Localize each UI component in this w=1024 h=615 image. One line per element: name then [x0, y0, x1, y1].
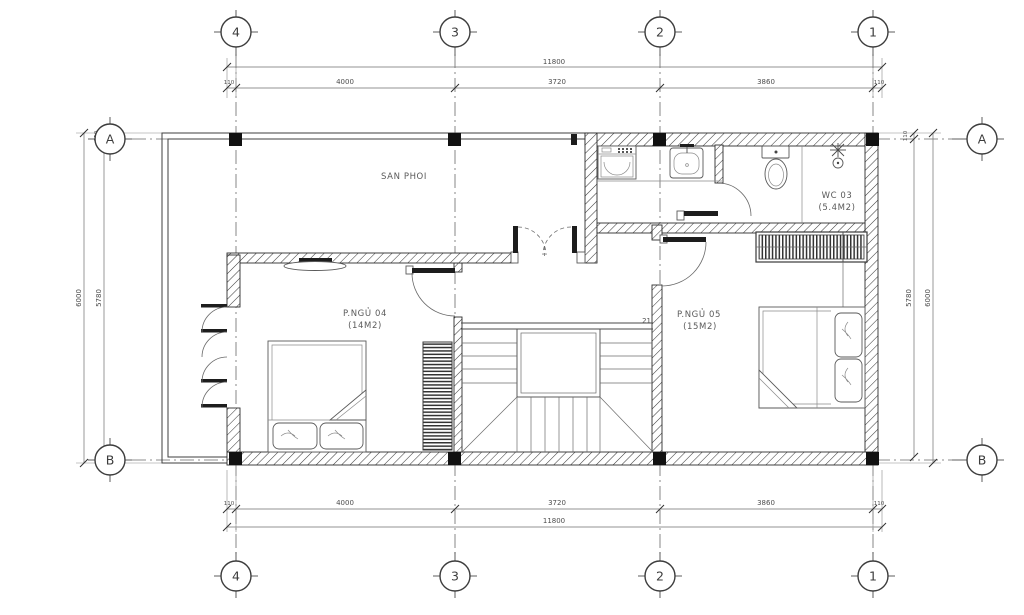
grid-bubble-label: 1 [869, 25, 877, 40]
grid-bubble-label: A [978, 132, 987, 147]
grid-bubble-top-2: 2 [638, 10, 682, 56]
bed-bedroom-04 [268, 341, 366, 452]
grid-bubble-top-1: 1 [851, 10, 895, 56]
dimension-chain-left: 6000 110 5780 [75, 129, 162, 467]
floor-plan-page: 11800 110 4000 3720 3860 110 110 4000 37… [0, 0, 1024, 615]
door-bedroom-05 [660, 235, 706, 286]
dim-top-seg-110-left: 110 [224, 80, 235, 86]
room-area-bed5: (15M2) [683, 322, 717, 332]
grid-bubble-left-B: B [88, 438, 132, 482]
stair-treads-left [462, 343, 517, 383]
grid-bubble-top-3: 3 [433, 10, 477, 56]
dim-right-inner: 5780 [905, 289, 913, 307]
wall-bed4-west-upper [227, 255, 240, 307]
grid-lines [132, 54, 952, 556]
door-jamb-double-door-left [511, 252, 518, 263]
dim-top-seg-3720: 3720 [548, 78, 566, 86]
dimension-chain-bottom: 110 4000 3720 3860 110 11800 [223, 470, 886, 532]
double-door-terrace [513, 226, 577, 256]
dimension-chain-top: 11800 110 4000 3720 3860 110 [223, 58, 886, 98]
dim-bottom-seg-3860: 3860 [757, 499, 775, 507]
wardrobe-bedroom-04 [423, 342, 452, 450]
grid-bubble-label: 3 [451, 25, 459, 40]
grid-bubble-label: 2 [656, 569, 664, 584]
stair-treads-bottom [517, 397, 600, 452]
bed-bedroom-05 [759, 307, 865, 408]
grid-bubble-label: B [106, 453, 115, 468]
wall-wc-door-stub [715, 145, 723, 183]
railing-end-post [571, 134, 577, 145]
grid-bubble-label: 1 [869, 569, 877, 584]
washing-machine [598, 146, 636, 179]
room-label-bed4: P.NGỦ 04 [343, 307, 387, 319]
dim-top-seg-110-right: 110 [874, 80, 885, 86]
room-area-bed4: (14M2) [348, 321, 382, 331]
dim-bottom-seg-4000: 4000 [336, 499, 354, 507]
floor-plan-canvas: 11800 110 4000 3720 3860 110 110 4000 37… [0, 0, 1024, 615]
dim-right-offset: 110 [903, 130, 909, 141]
grid-bubble-label: 4 [232, 569, 240, 584]
dim-top-total: 11800 [543, 58, 565, 66]
grid-bubble-right-A: A [952, 117, 1004, 161]
grid-bubble-bottom-3: 3 [433, 552, 477, 598]
stair-step-label: 21 [642, 317, 651, 325]
grid-bubble-bottom-2: 2 [638, 552, 682, 598]
wall-bed4-north [227, 253, 513, 263]
shower-head [830, 143, 846, 168]
door-bedroom-04 [406, 266, 455, 316]
door-jamb-double-door-right [577, 252, 585, 263]
dim-top-seg-3860: 3860 [757, 78, 775, 86]
wardrobe-bedroom-05 [756, 232, 867, 307]
grid-bubble-top-4: 4 [214, 10, 258, 56]
room-area-wc: (5.4M2) [818, 203, 855, 213]
room-label-wc: WC 03 [822, 191, 853, 201]
room-label-san-phoi: SAN PHOI [381, 172, 427, 182]
stair-break-line-right [600, 397, 652, 451]
dim-bottom-total: 11800 [543, 517, 565, 525]
toilet [762, 146, 789, 189]
dim-top-seg-4000: 4000 [336, 78, 354, 86]
grid-bubble-label: 3 [451, 569, 459, 584]
wall-bed4-west-lower [227, 408, 240, 452]
wall-stair-west-stub [454, 263, 462, 272]
stair-treads-right [600, 343, 652, 383]
grid-bubble-left-A: A [88, 117, 132, 161]
dim-bottom-seg-110-right: 110 [874, 501, 885, 507]
grid-bubble-label: 4 [232, 25, 240, 40]
grid-bubble-bottom-4: 4 [214, 552, 258, 598]
dim-left-overall: 6000 [75, 289, 83, 307]
grid-bubble-label: A [106, 132, 115, 147]
wall-stair-west [454, 317, 462, 452]
folding-doors-terrace [201, 304, 227, 408]
grid-bubble-bottom-1: 1 [851, 552, 895, 598]
wall-north [585, 133, 878, 146]
wall-laundry-west [585, 133, 597, 263]
terrace-railing [162, 133, 585, 463]
staircase: 21 [461, 317, 653, 452]
wall-east [865, 133, 878, 465]
stair-break-line-left [462, 397, 517, 452]
dim-bottom-seg-110-left: 110 [224, 501, 235, 507]
dim-left-inner: 5780 [95, 289, 103, 307]
dim-bottom-seg-3720: 3720 [548, 499, 566, 507]
sink [670, 144, 703, 178]
dim-right-overall: 6000 [924, 289, 932, 307]
dimension-chain-right: 110 5780 6000 [878, 129, 941, 467]
grid-bubble-label: B [978, 453, 987, 468]
wall-south [227, 452, 878, 465]
grid-bubble-label: 2 [656, 25, 664, 40]
room-label-bed5: P.NGỦ 05 [677, 308, 721, 320]
grid-bubble-right-B: B [952, 438, 1004, 482]
wall-bed5-west [652, 285, 662, 452]
